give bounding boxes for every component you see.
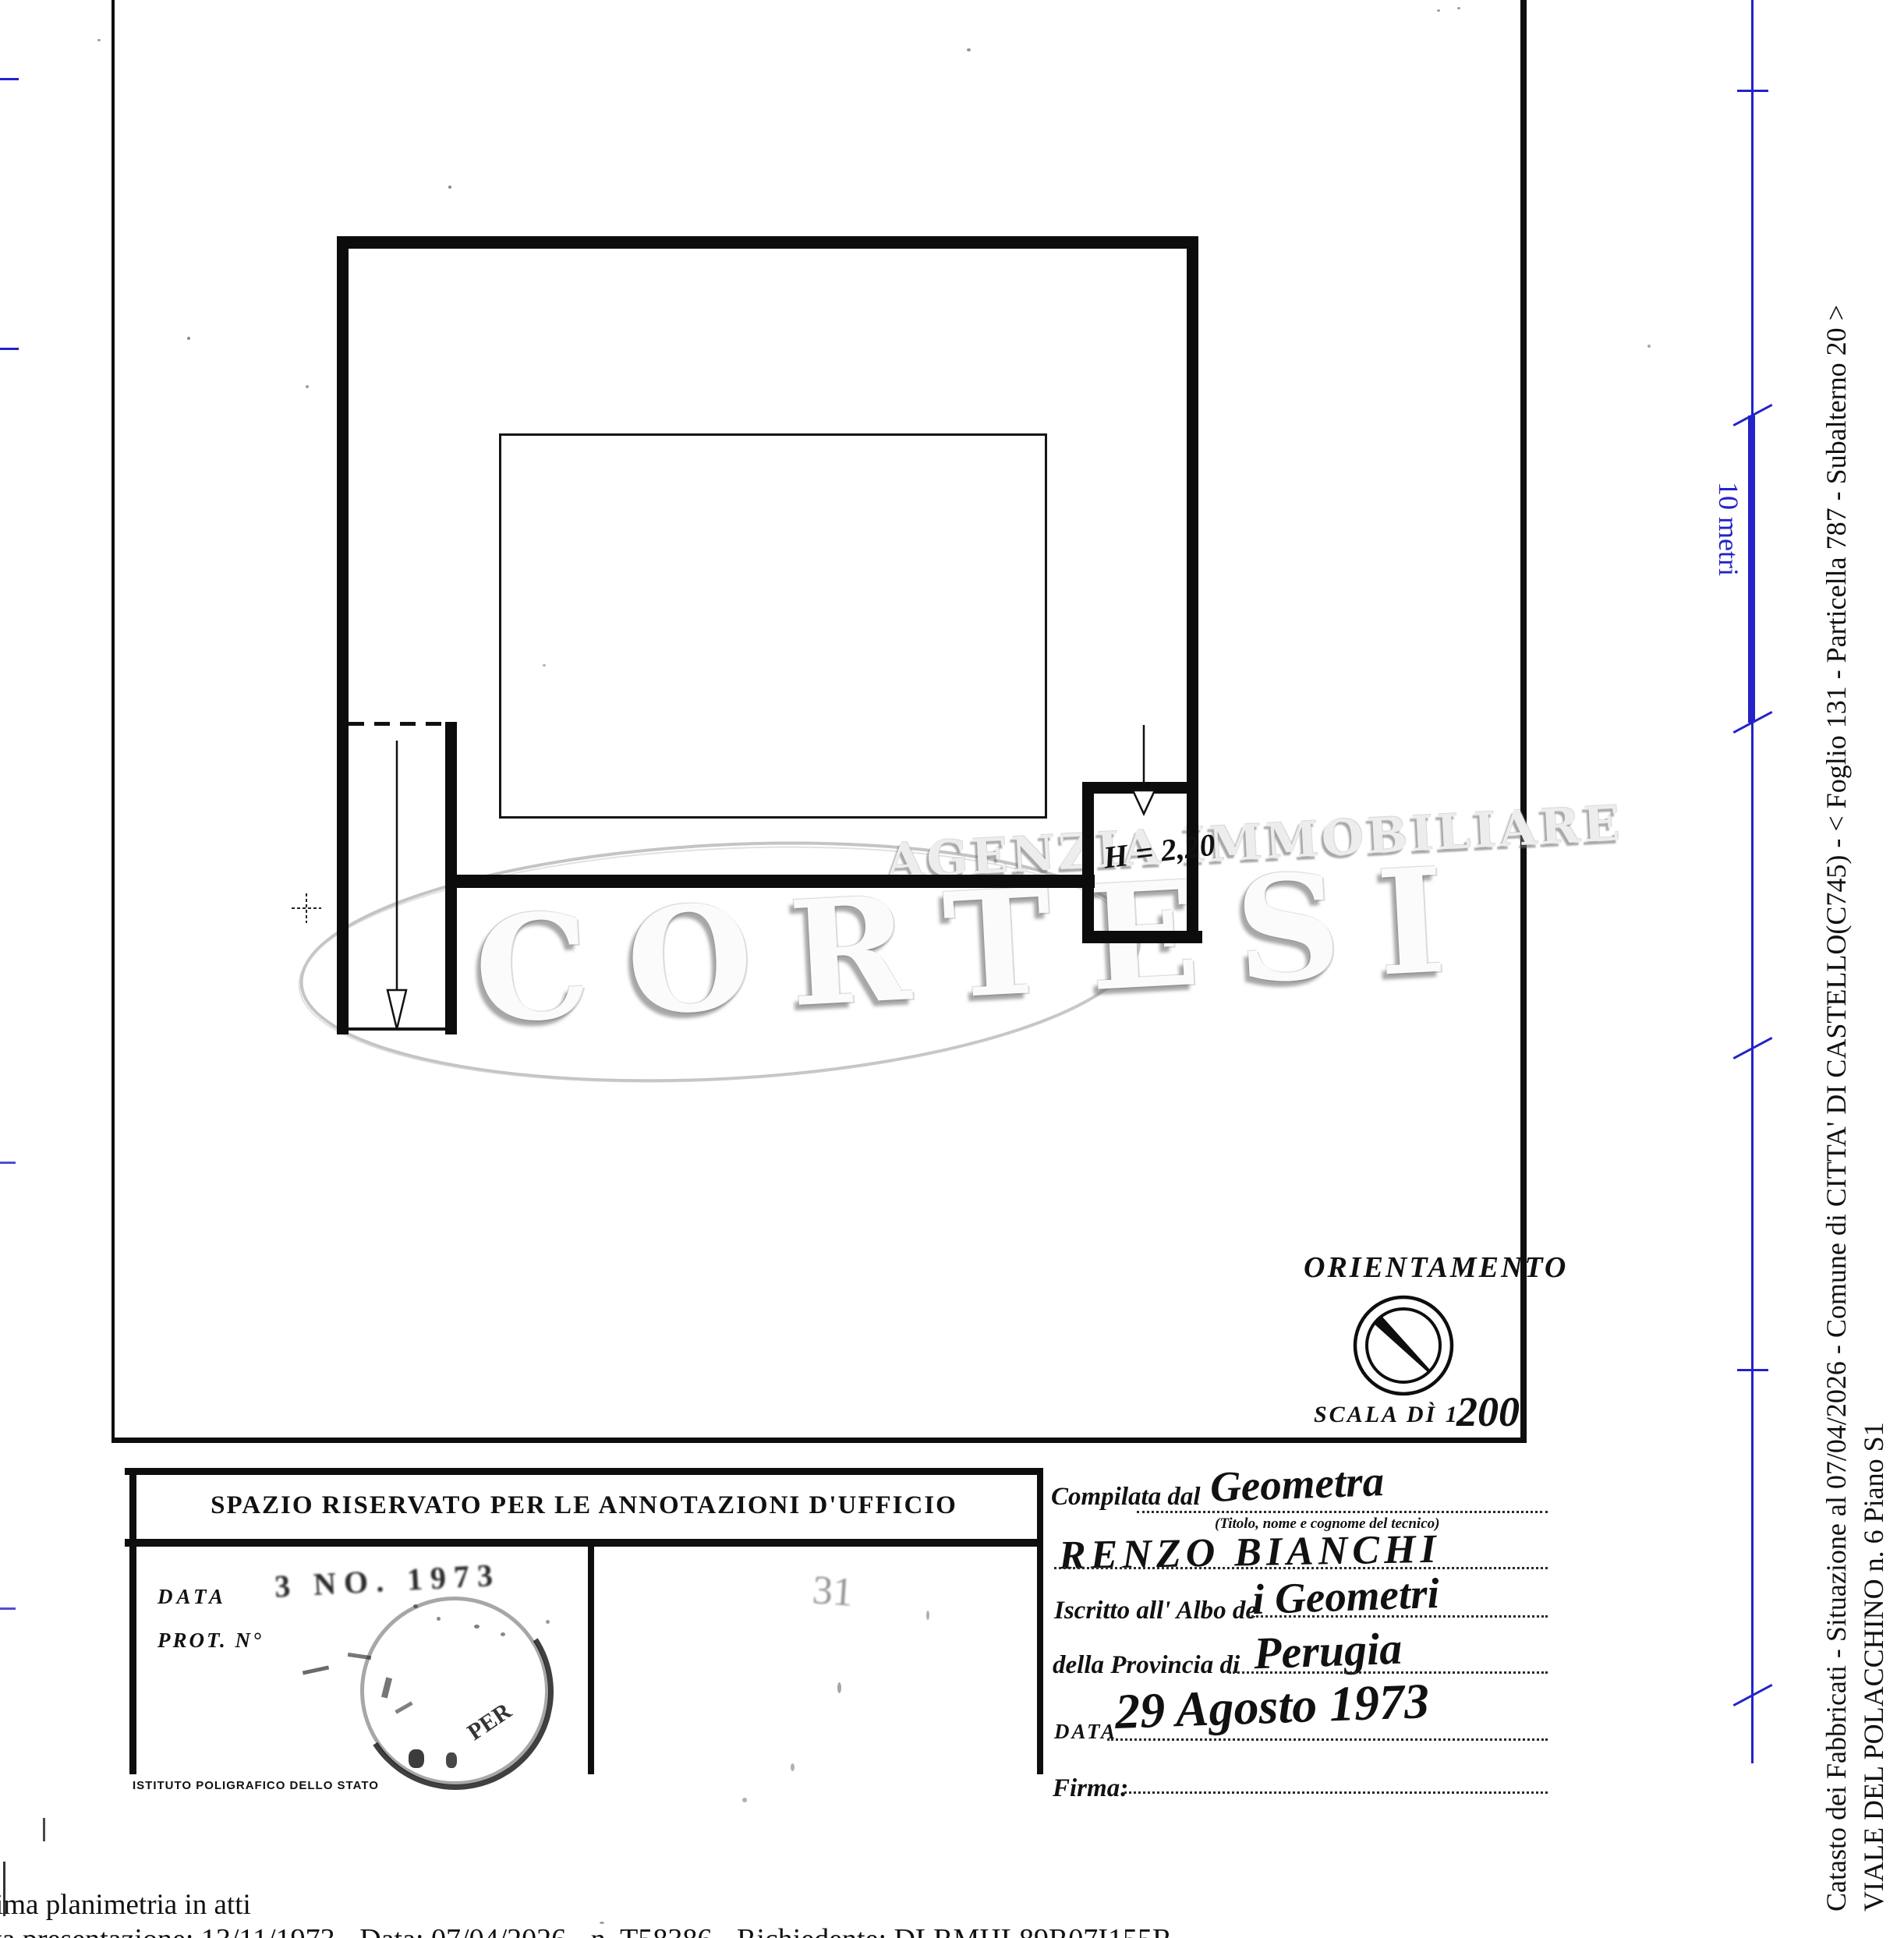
sheet-frame-left bbox=[111, 0, 115, 1441]
sheet-frame-right bbox=[1520, 0, 1527, 1441]
survey-cross-icon bbox=[292, 893, 321, 923]
ruler-tick bbox=[1737, 90, 1768, 92]
form-dotted-line bbox=[1248, 1615, 1548, 1618]
faint-speck bbox=[791, 1763, 795, 1771]
dust-speck bbox=[448, 186, 451, 189]
small-room-left-wall bbox=[1082, 782, 1094, 943]
stamp-speck bbox=[413, 1604, 418, 1608]
footer-presentation-line: ta presentazione: 13/11/1973 - Data: 07/… bbox=[0, 1922, 1172, 1938]
stamp-speck bbox=[546, 1620, 550, 1624]
dust-speck bbox=[543, 664, 546, 667]
compilata-value: Geometra bbox=[1209, 1456, 1385, 1512]
faint-speck bbox=[926, 1611, 929, 1620]
plan-lower-wall bbox=[451, 875, 1095, 888]
provincia-label: della Provincia di bbox=[1053, 1651, 1240, 1680]
dust-speck bbox=[1437, 9, 1440, 12]
dust-speck bbox=[1457, 7, 1460, 9]
dust-speck bbox=[97, 39, 101, 41]
office-box-header-divider bbox=[125, 1539, 1043, 1547]
office-box-header: SPAZIO RISERVATO PER LE ANNOTAZIONI D'UF… bbox=[125, 1491, 1043, 1520]
plan-left-wall bbox=[337, 236, 349, 1034]
footer-note: ima planimetria in atti bbox=[0, 1888, 251, 1922]
dust-speck bbox=[600, 1922, 604, 1924]
sheet-frame-bottom bbox=[111, 1438, 1527, 1443]
dust-speck bbox=[187, 337, 190, 340]
left-ruler-tick bbox=[0, 78, 19, 80]
small-room-bottom-wall bbox=[1082, 931, 1202, 943]
albo-label: Iscritto all' Albo de bbox=[1054, 1597, 1257, 1625]
office-protocol-number-faint: 31 bbox=[811, 1567, 855, 1615]
printer-credit: ISTITUTO POLIGRAFICO DELLO STATO bbox=[133, 1779, 379, 1792]
left-ruler-tick bbox=[0, 1162, 16, 1164]
stairs-down-arrow-icon bbox=[382, 739, 413, 1035]
entry-down-arrow-icon bbox=[1129, 725, 1160, 819]
left-ruler-tick bbox=[0, 1607, 16, 1610]
ruler-label: 10 metri bbox=[1712, 482, 1745, 576]
stamp-speck bbox=[501, 1632, 505, 1636]
dust-speck bbox=[306, 385, 309, 388]
cadastral-reference-line: Catasto dei Fabbricati - Situazione al 0… bbox=[1820, 305, 1853, 1911]
faint-speck bbox=[837, 1682, 841, 1693]
firma-label: Firma: bbox=[1053, 1774, 1128, 1803]
form-dotted-line bbox=[1124, 1791, 1548, 1794]
office-annotations-box: SPAZIO RISERVATO PER LE ANNOTAZIONI D'UF… bbox=[125, 1468, 1043, 1774]
faint-speck bbox=[742, 1798, 747, 1802]
compilata-label: Compilata dal bbox=[1051, 1483, 1201, 1512]
ruler-line bbox=[1751, 0, 1754, 1763]
office-box-column-divider bbox=[588, 1547, 594, 1774]
dust-speck bbox=[967, 48, 971, 51]
stamp-blob-2 bbox=[446, 1752, 457, 1768]
stamp-speck bbox=[437, 1617, 441, 1621]
stair-dashed-line bbox=[349, 722, 445, 726]
ruler-tick bbox=[1737, 1369, 1768, 1371]
form-dotted-line bbox=[1054, 1567, 1548, 1569]
scale-value: 200 bbox=[1456, 1388, 1520, 1436]
scanned-cadastral-plan-page: AGENZIA IMMOBILIARE CORTESI H = 2,20 ORI… bbox=[0, 0, 1904, 1938]
stamp-speck bbox=[474, 1625, 480, 1629]
inner-room-outline bbox=[499, 433, 1047, 819]
stamp-blob-1 bbox=[409, 1749, 424, 1768]
form-dotted-line bbox=[1107, 1738, 1548, 1741]
address-reference-line: VIALE DEL POLACCHINO n. 6 Piano S1 bbox=[1857, 1422, 1890, 1911]
dust-speck bbox=[1647, 345, 1651, 348]
form-dotted-line bbox=[1137, 1511, 1548, 1513]
ruler-thick-segment bbox=[1748, 416, 1755, 723]
office-data-label: DATA bbox=[157, 1585, 227, 1609]
plan-top-wall bbox=[337, 236, 1198, 249]
office-prot-label: PROT. N° bbox=[157, 1629, 264, 1653]
scale-label: SCALA DÌ 1. bbox=[1314, 1402, 1467, 1428]
office-box-top-border bbox=[125, 1468, 1043, 1475]
small-dash-mark bbox=[43, 1818, 45, 1841]
left-ruler-tick bbox=[0, 348, 19, 350]
watermark: AGENZIA IMMOBILIARE CORTESI bbox=[290, 778, 1566, 1109]
form-data-value: 29 Agosto 1973 bbox=[1114, 1672, 1430, 1741]
